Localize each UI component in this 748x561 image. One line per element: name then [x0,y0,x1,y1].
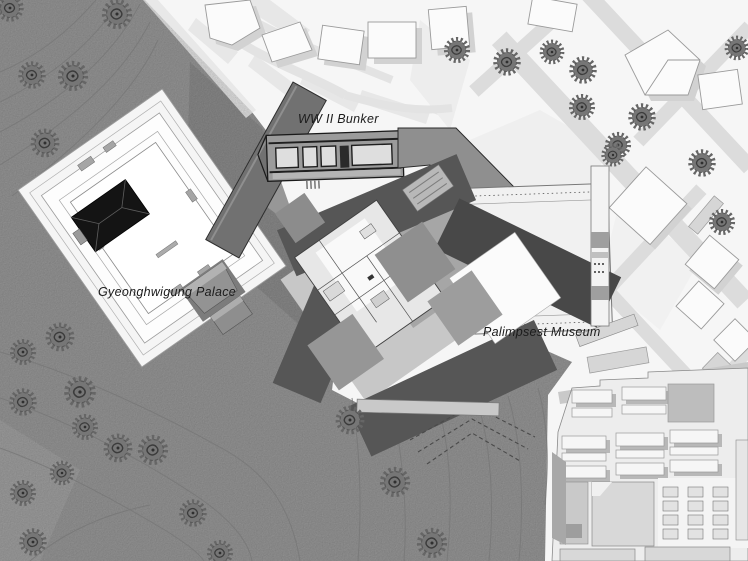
site-plan: Gyeonghwigung Palace WW II Bunker Palimp… [0,0,748,561]
site-plan-svg: Gyeonghwigung Palace WW II Bunker Palimp… [0,0,748,561]
label-museum: Palimpsest Museum [483,325,601,339]
label-bunker: WW II Bunker [298,112,379,126]
housing-west-shadow [552,452,566,545]
tree-icon [209,542,231,561]
bunker-core-wall [340,146,350,168]
label-palace: Gyeonghwigung Palace [98,285,236,299]
housing-block [552,362,748,561]
housing-gray-roof [668,384,714,422]
housing-bottom-bars [560,547,730,561]
bunker-rooms [276,144,393,168]
